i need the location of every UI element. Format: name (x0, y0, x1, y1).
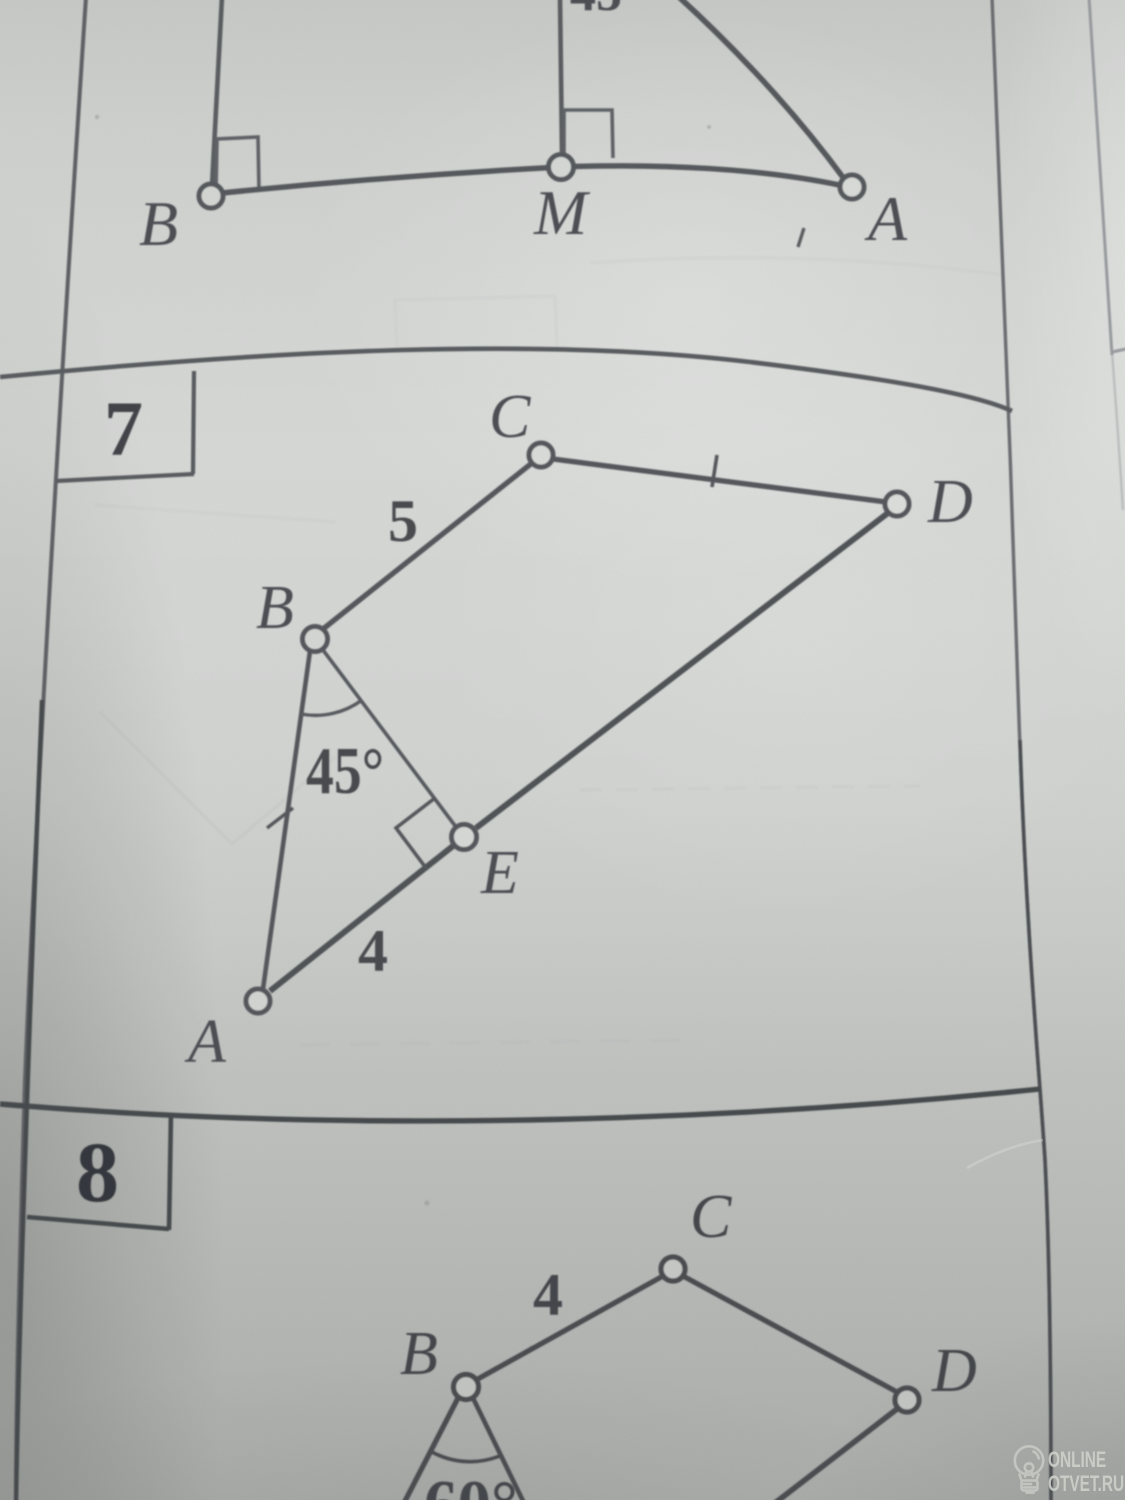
svg-text:OTVET.RU: OTVET.RU (1048, 1472, 1124, 1496)
svg-text:ONLINE: ONLINE (1048, 1448, 1106, 1472)
